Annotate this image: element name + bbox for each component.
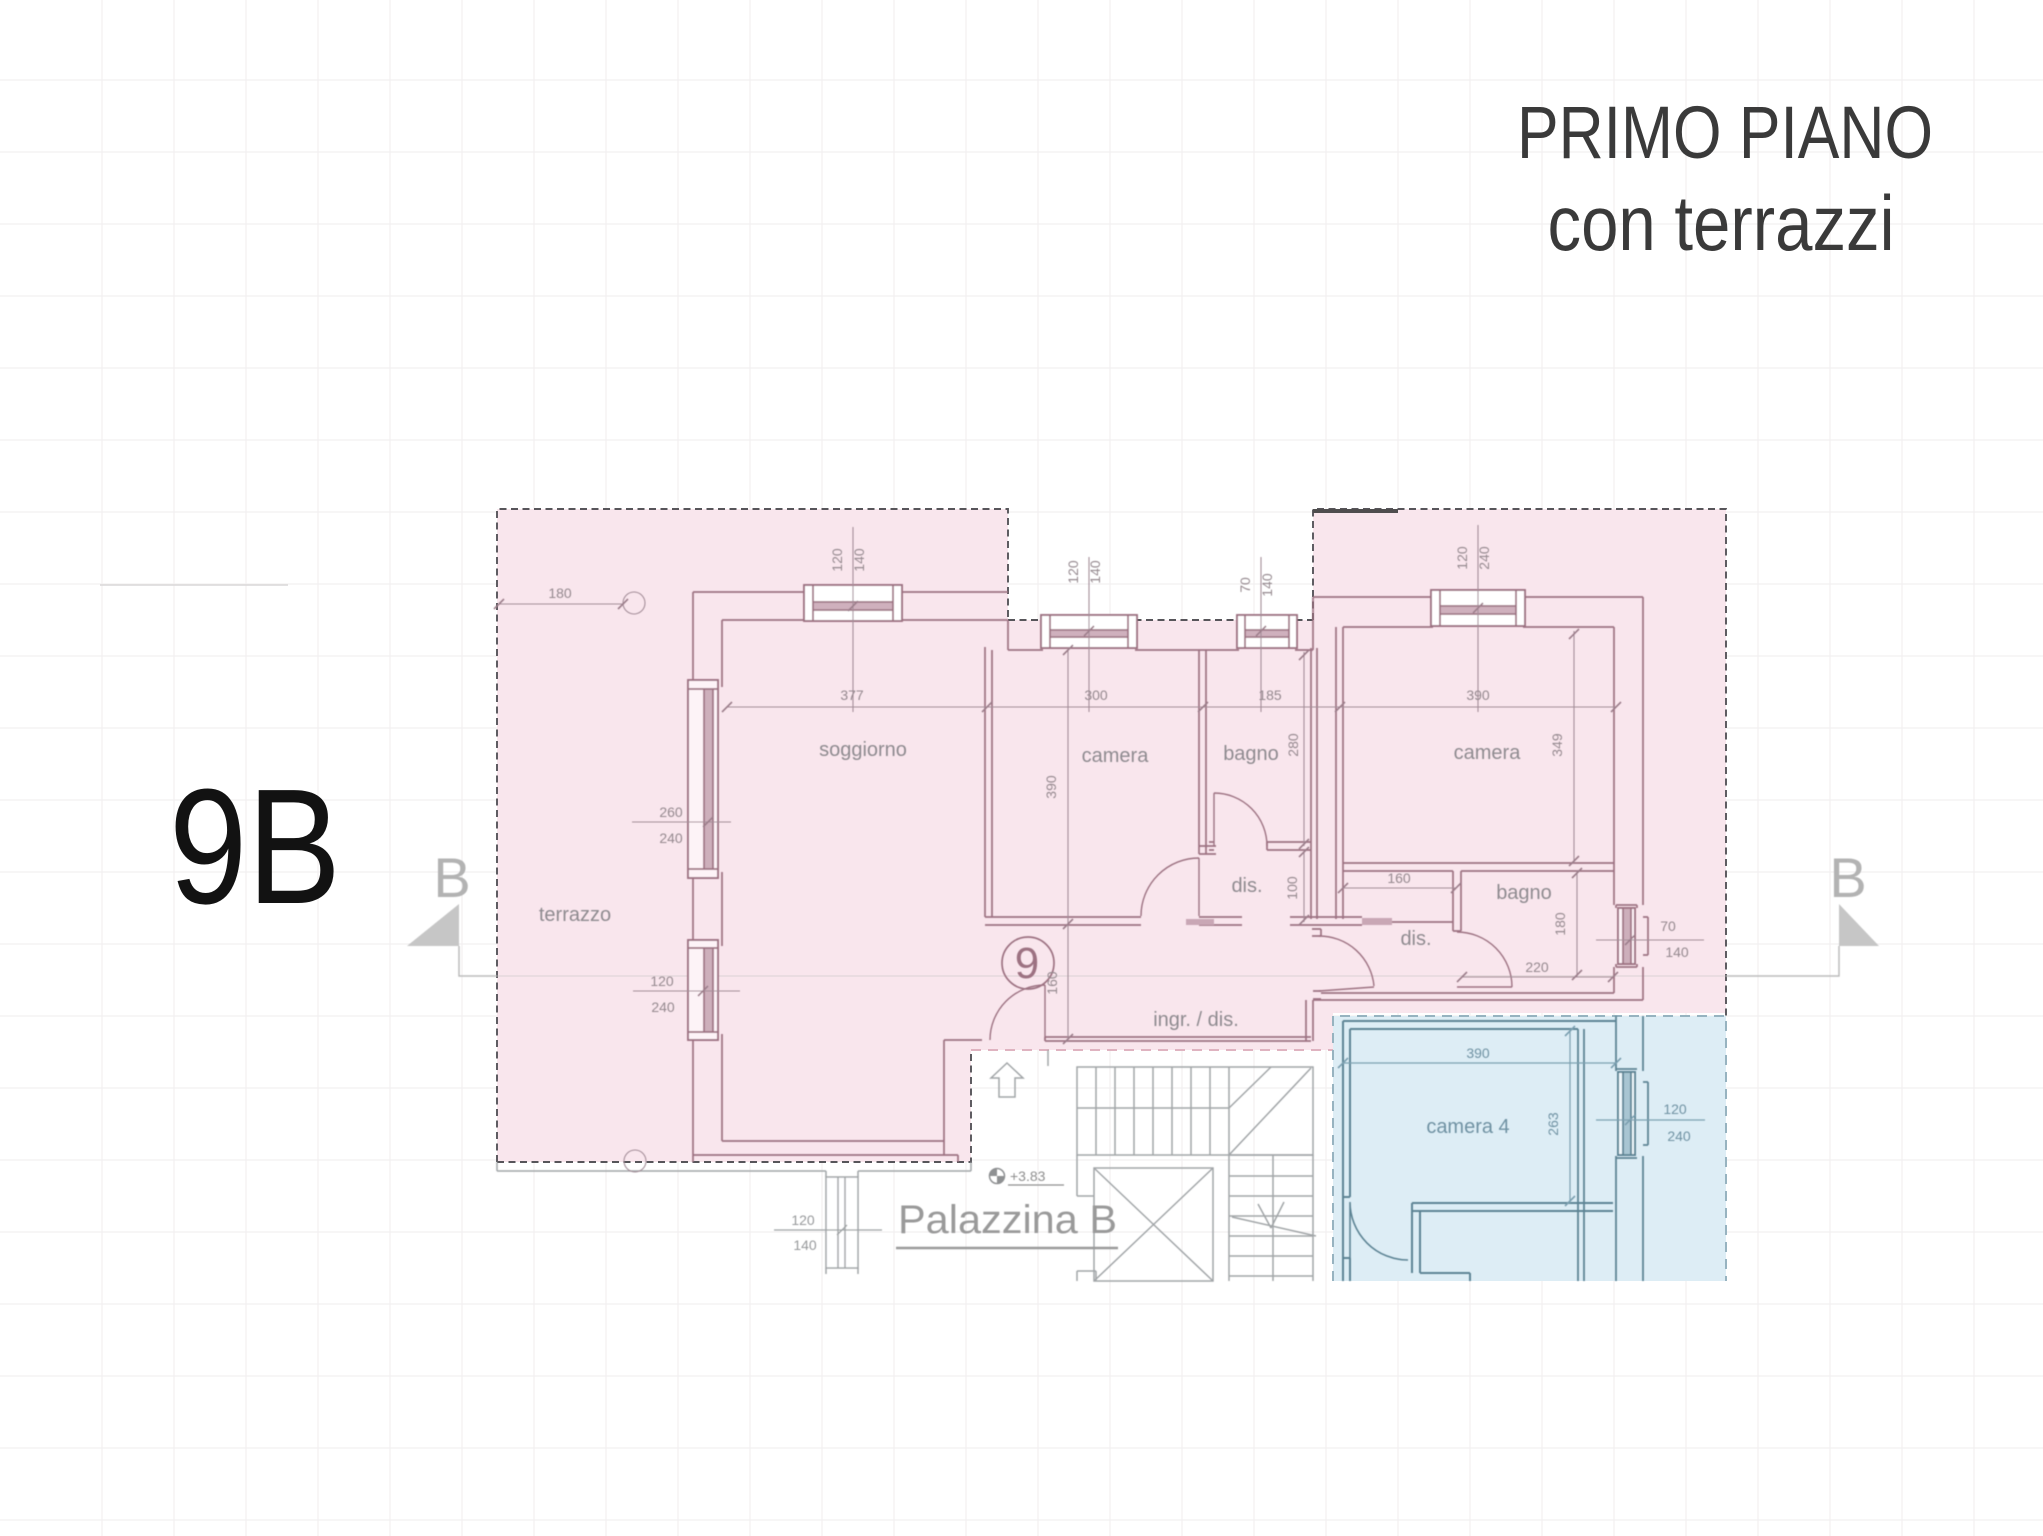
svg-text:PRIMO PIANO: PRIMO PIANO <box>1517 91 1933 174</box>
svg-text:camera 4: camera 4 <box>1426 1116 1509 1138</box>
svg-text:390: 390 <box>1466 687 1490 703</box>
svg-text:120: 120 <box>650 973 674 989</box>
svg-text:377: 377 <box>840 687 864 703</box>
svg-text:70: 70 <box>1237 577 1253 593</box>
svg-text:160: 160 <box>1387 870 1411 886</box>
svg-text:240: 240 <box>651 999 675 1015</box>
svg-text:9B: 9B <box>169 755 341 938</box>
svg-text:280: 280 <box>1285 733 1301 757</box>
svg-text:240: 240 <box>1667 1128 1691 1144</box>
svg-text:349: 349 <box>1549 733 1565 757</box>
svg-text:soggiorno: soggiorno <box>819 739 907 761</box>
svg-text:B: B <box>433 846 470 909</box>
svg-text:300: 300 <box>1084 687 1108 703</box>
svg-text:B: B <box>1829 846 1866 909</box>
svg-text:140: 140 <box>793 1237 817 1253</box>
svg-text:120: 120 <box>1663 1101 1687 1117</box>
svg-text:160: 160 <box>1044 971 1060 995</box>
svg-text:con terrazzi: con terrazzi <box>1548 179 1895 267</box>
svg-text:dis.: dis. <box>1400 928 1431 950</box>
svg-text:9: 9 <box>1015 939 1039 988</box>
svg-text:bagno: bagno <box>1496 882 1552 904</box>
svg-text:100: 100 <box>1284 876 1300 900</box>
svg-text:140: 140 <box>851 548 867 572</box>
svg-text:120: 120 <box>791 1212 815 1228</box>
svg-text:390: 390 <box>1043 775 1059 799</box>
svg-text:185: 185 <box>1258 687 1282 703</box>
svg-text:140: 140 <box>1259 573 1275 597</box>
svg-text:220: 220 <box>1525 959 1549 975</box>
svg-text:140: 140 <box>1665 944 1689 960</box>
svg-text:Palazzina B: Palazzina B <box>898 1198 1117 1242</box>
svg-text:180: 180 <box>1552 912 1568 936</box>
svg-text:240: 240 <box>659 830 683 846</box>
svg-text:263: 263 <box>1545 1112 1561 1136</box>
svg-text:120: 120 <box>1454 546 1470 570</box>
svg-text:camera: camera <box>1082 745 1150 767</box>
svg-text:dis.: dis. <box>1231 875 1262 897</box>
svg-text:120: 120 <box>829 548 845 572</box>
svg-text:70: 70 <box>1660 918 1676 934</box>
svg-text:260: 260 <box>659 804 683 820</box>
svg-text:120: 120 <box>1065 560 1081 584</box>
svg-text:terrazzo: terrazzo <box>539 904 611 926</box>
svg-text:bagno: bagno <box>1223 743 1279 765</box>
svg-text:camera: camera <box>1454 742 1522 764</box>
svg-text:ingr. / dis.: ingr. / dis. <box>1153 1009 1239 1031</box>
svg-text:180: 180 <box>548 585 572 601</box>
svg-text:390: 390 <box>1466 1045 1490 1061</box>
svg-text:140: 140 <box>1087 560 1103 584</box>
svg-text:+3.83: +3.83 <box>1010 1168 1046 1184</box>
svg-text:240: 240 <box>1476 546 1492 570</box>
